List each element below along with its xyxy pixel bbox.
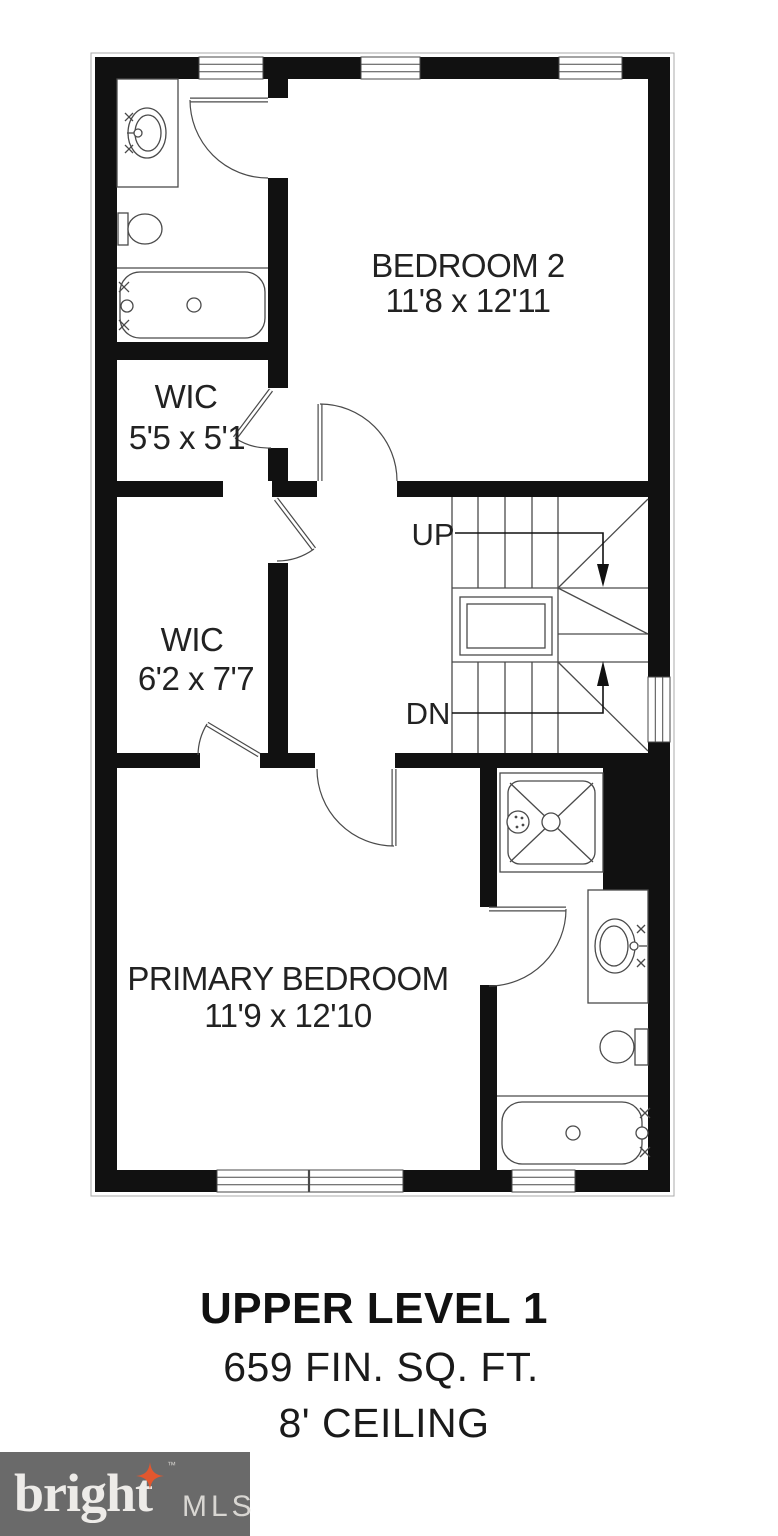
- title-block: UPPER LEVEL 1 659 FIN. SQ. FT. 8' CEILIN…: [200, 1284, 548, 1446]
- bathtub: [117, 268, 268, 338]
- staircase: [452, 497, 648, 753]
- level-title: UPPER LEVEL 1: [200, 1284, 548, 1333]
- window-right-stair: [648, 677, 670, 742]
- tub-drain: [187, 298, 201, 312]
- door-hall-bathroom: [190, 100, 268, 178]
- stair-down-arrow: [452, 684, 603, 713]
- sparkle-star-icon: [136, 1462, 164, 1490]
- room-dims-wic-small: 5'5 x 5'1: [129, 419, 245, 456]
- brightmls-logo: bright ™ MLS: [0, 1452, 250, 1536]
- shower: [500, 773, 603, 872]
- toilet: [600, 1029, 648, 1065]
- window-top-3: [559, 57, 622, 79]
- shower-drain: [542, 813, 560, 831]
- trademark-symbol: ™: [167, 1460, 176, 1470]
- door-primary-bedroom: [317, 769, 394, 846]
- stair-up-arrow: [455, 533, 603, 566]
- stair-up-label: UP: [411, 517, 454, 552]
- sink: [595, 919, 647, 973]
- logo-wordmark: bright: [14, 1466, 152, 1520]
- door-wic-large: [276, 499, 314, 561]
- room-label-wic-small: WIC: [155, 378, 218, 415]
- stair-down-label: DN: [406, 696, 451, 731]
- logo-suffix: MLS: [182, 1490, 256, 1524]
- finished-area: 659 FIN. SQ. FT.: [223, 1344, 539, 1390]
- shower-head: [507, 811, 529, 833]
- door-wic-to-primary: [198, 724, 259, 755]
- floorplan-drawing: BEDROOM 2 11'8 x 12'11 WIC 5'5 x 5'1 WIC…: [0, 0, 778, 1536]
- window-bottom-bath: [512, 1170, 575, 1192]
- window-top-1: [199, 57, 263, 79]
- window-top-2: [361, 57, 420, 79]
- room-label-bedroom2: BEDROOM 2: [371, 247, 565, 284]
- bathtub: [497, 1096, 650, 1164]
- floorplan-page: BEDROOM 2 11'8 x 12'11 WIC 5'5 x 5'1 WIC…: [0, 0, 778, 1536]
- sink: [125, 108, 166, 158]
- room-label-wic-large: WIC: [161, 621, 224, 658]
- toilet: [118, 213, 162, 245]
- tub-drain: [566, 1126, 580, 1140]
- tub-faucet: [121, 300, 133, 312]
- room-dims-bedroom2: 11'8 x 12'11: [385, 282, 550, 319]
- tub-faucet: [636, 1127, 648, 1139]
- door-bedroom2: [320, 404, 397, 481]
- window-bottom-primary: [217, 1170, 403, 1192]
- ceiling-height: 8' CEILING: [278, 1400, 489, 1446]
- room-label-primary: PRIMARY BEDROOM: [127, 960, 448, 997]
- door-primary-bathroom: [489, 909, 566, 986]
- room-dims-primary: 11'9 x 12'10: [204, 997, 372, 1034]
- room-dims-wic-large: 6'2 x 7'7: [138, 660, 254, 697]
